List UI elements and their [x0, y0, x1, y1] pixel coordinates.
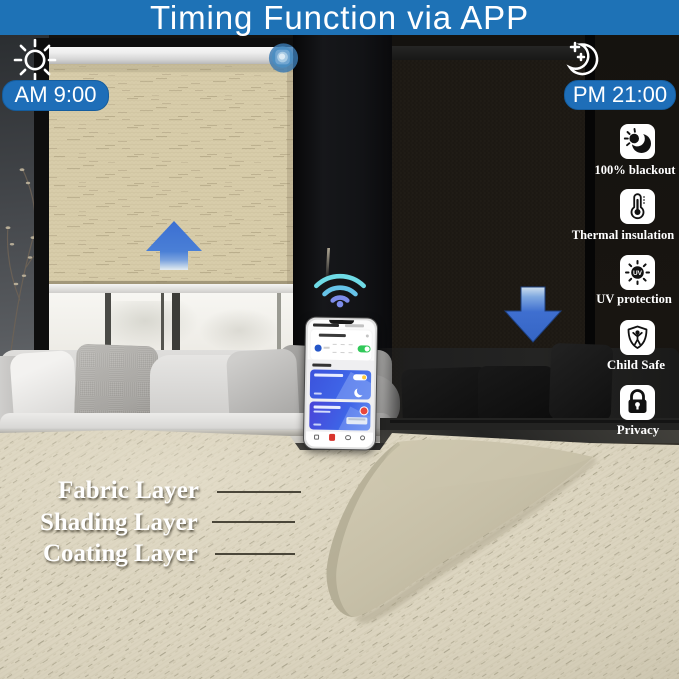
- svg-text:UV: UV: [633, 270, 643, 277]
